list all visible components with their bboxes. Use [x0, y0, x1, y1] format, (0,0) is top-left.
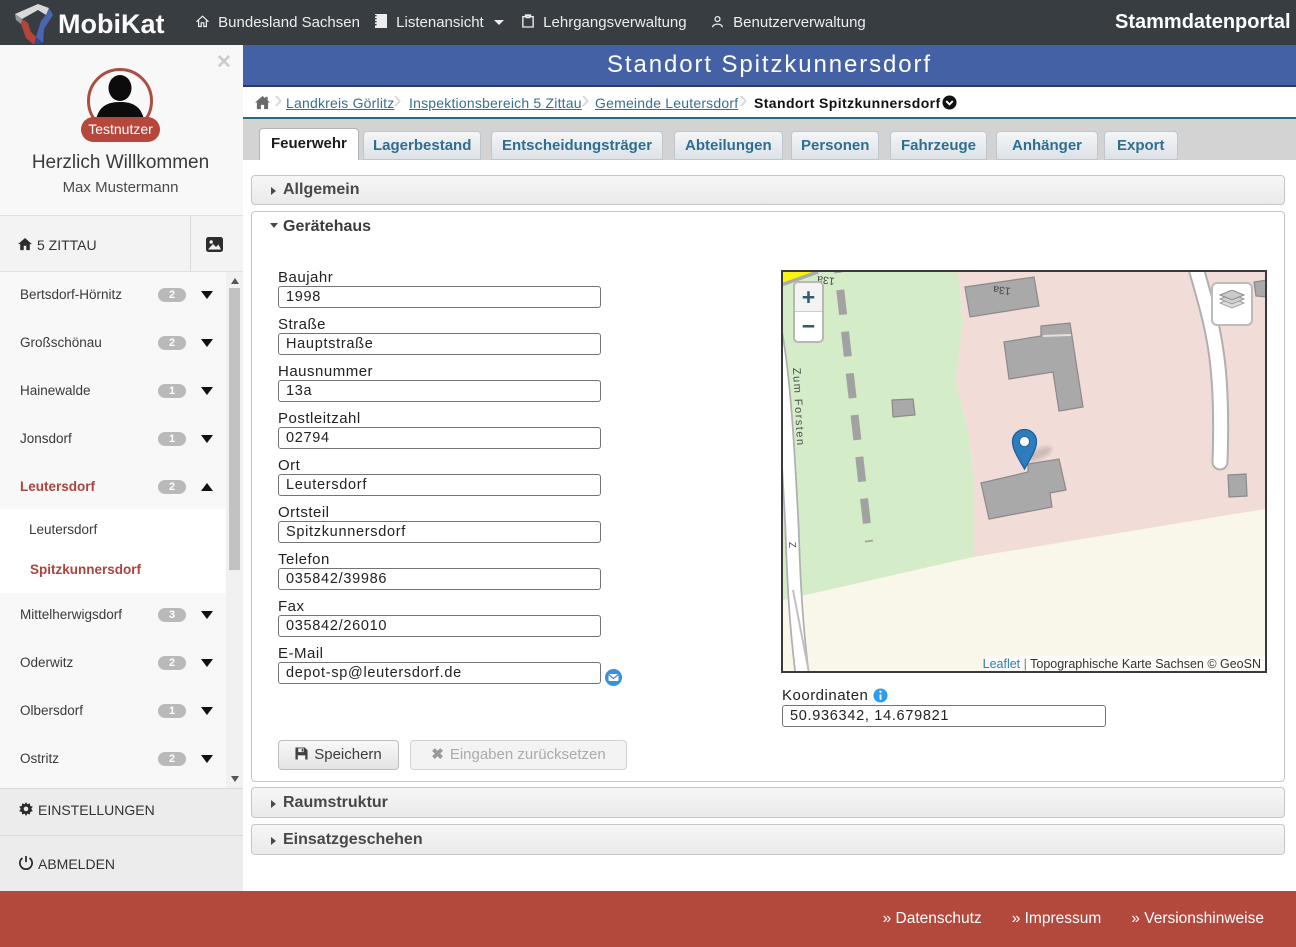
svg-text:Leaflet | Topographische Karte: Leaflet | Topographische Karte Sachsen ©… [983, 657, 1261, 671]
svg-text:13a: 13a [992, 283, 1011, 297]
svg-text:Z: Z [786, 542, 797, 549]
